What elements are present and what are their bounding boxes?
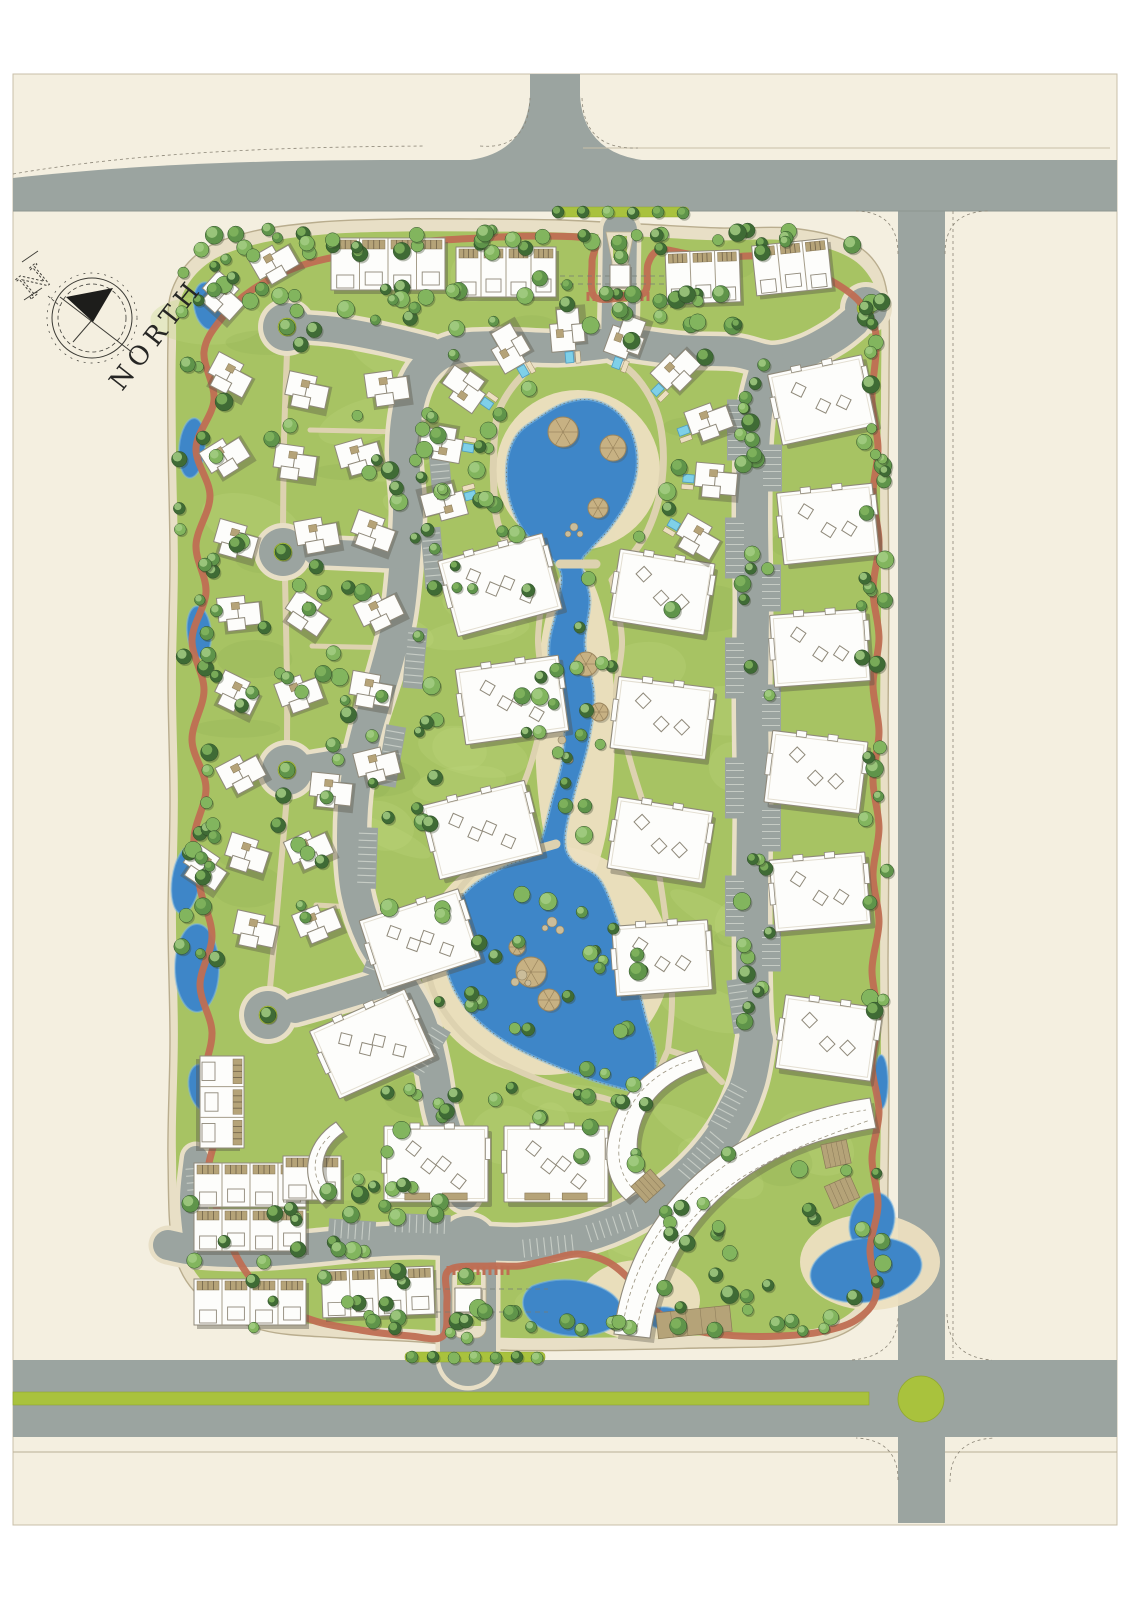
stones <box>558 736 566 744</box>
stones <box>525 980 531 986</box>
master-plan-map: N NORTH <box>0 0 1131 1600</box>
main-road-north <box>13 160 1117 211</box>
stones <box>517 970 527 980</box>
roundabout-island <box>898 1376 944 1422</box>
apartment-building <box>767 605 875 692</box>
parking-bay <box>761 805 781 852</box>
stones <box>547 917 557 927</box>
townhouse-row <box>196 1056 244 1151</box>
page: N NORTH <box>0 0 1131 1600</box>
garden-path <box>285 578 287 744</box>
apartment-building <box>607 673 718 765</box>
apartment-building <box>766 849 875 938</box>
parking-bay <box>762 445 782 492</box>
stones <box>556 926 564 934</box>
apartment-building <box>774 480 884 570</box>
apartment-building <box>609 916 717 1001</box>
main-road-east <box>898 160 945 1523</box>
gatehouse <box>610 265 632 289</box>
stones <box>577 531 583 537</box>
stones <box>542 925 548 931</box>
tree-median <box>553 207 689 217</box>
grass-patch <box>193 719 280 738</box>
parking-bay <box>725 758 745 819</box>
road-median <box>13 1392 869 1405</box>
stones <box>565 531 571 537</box>
townhouse-row <box>321 1266 438 1322</box>
parking-bay <box>725 638 745 699</box>
stones <box>511 978 519 986</box>
stones <box>570 523 578 531</box>
apartment-building <box>761 727 872 819</box>
parking-bay <box>725 518 745 579</box>
parking-bay <box>356 827 378 889</box>
